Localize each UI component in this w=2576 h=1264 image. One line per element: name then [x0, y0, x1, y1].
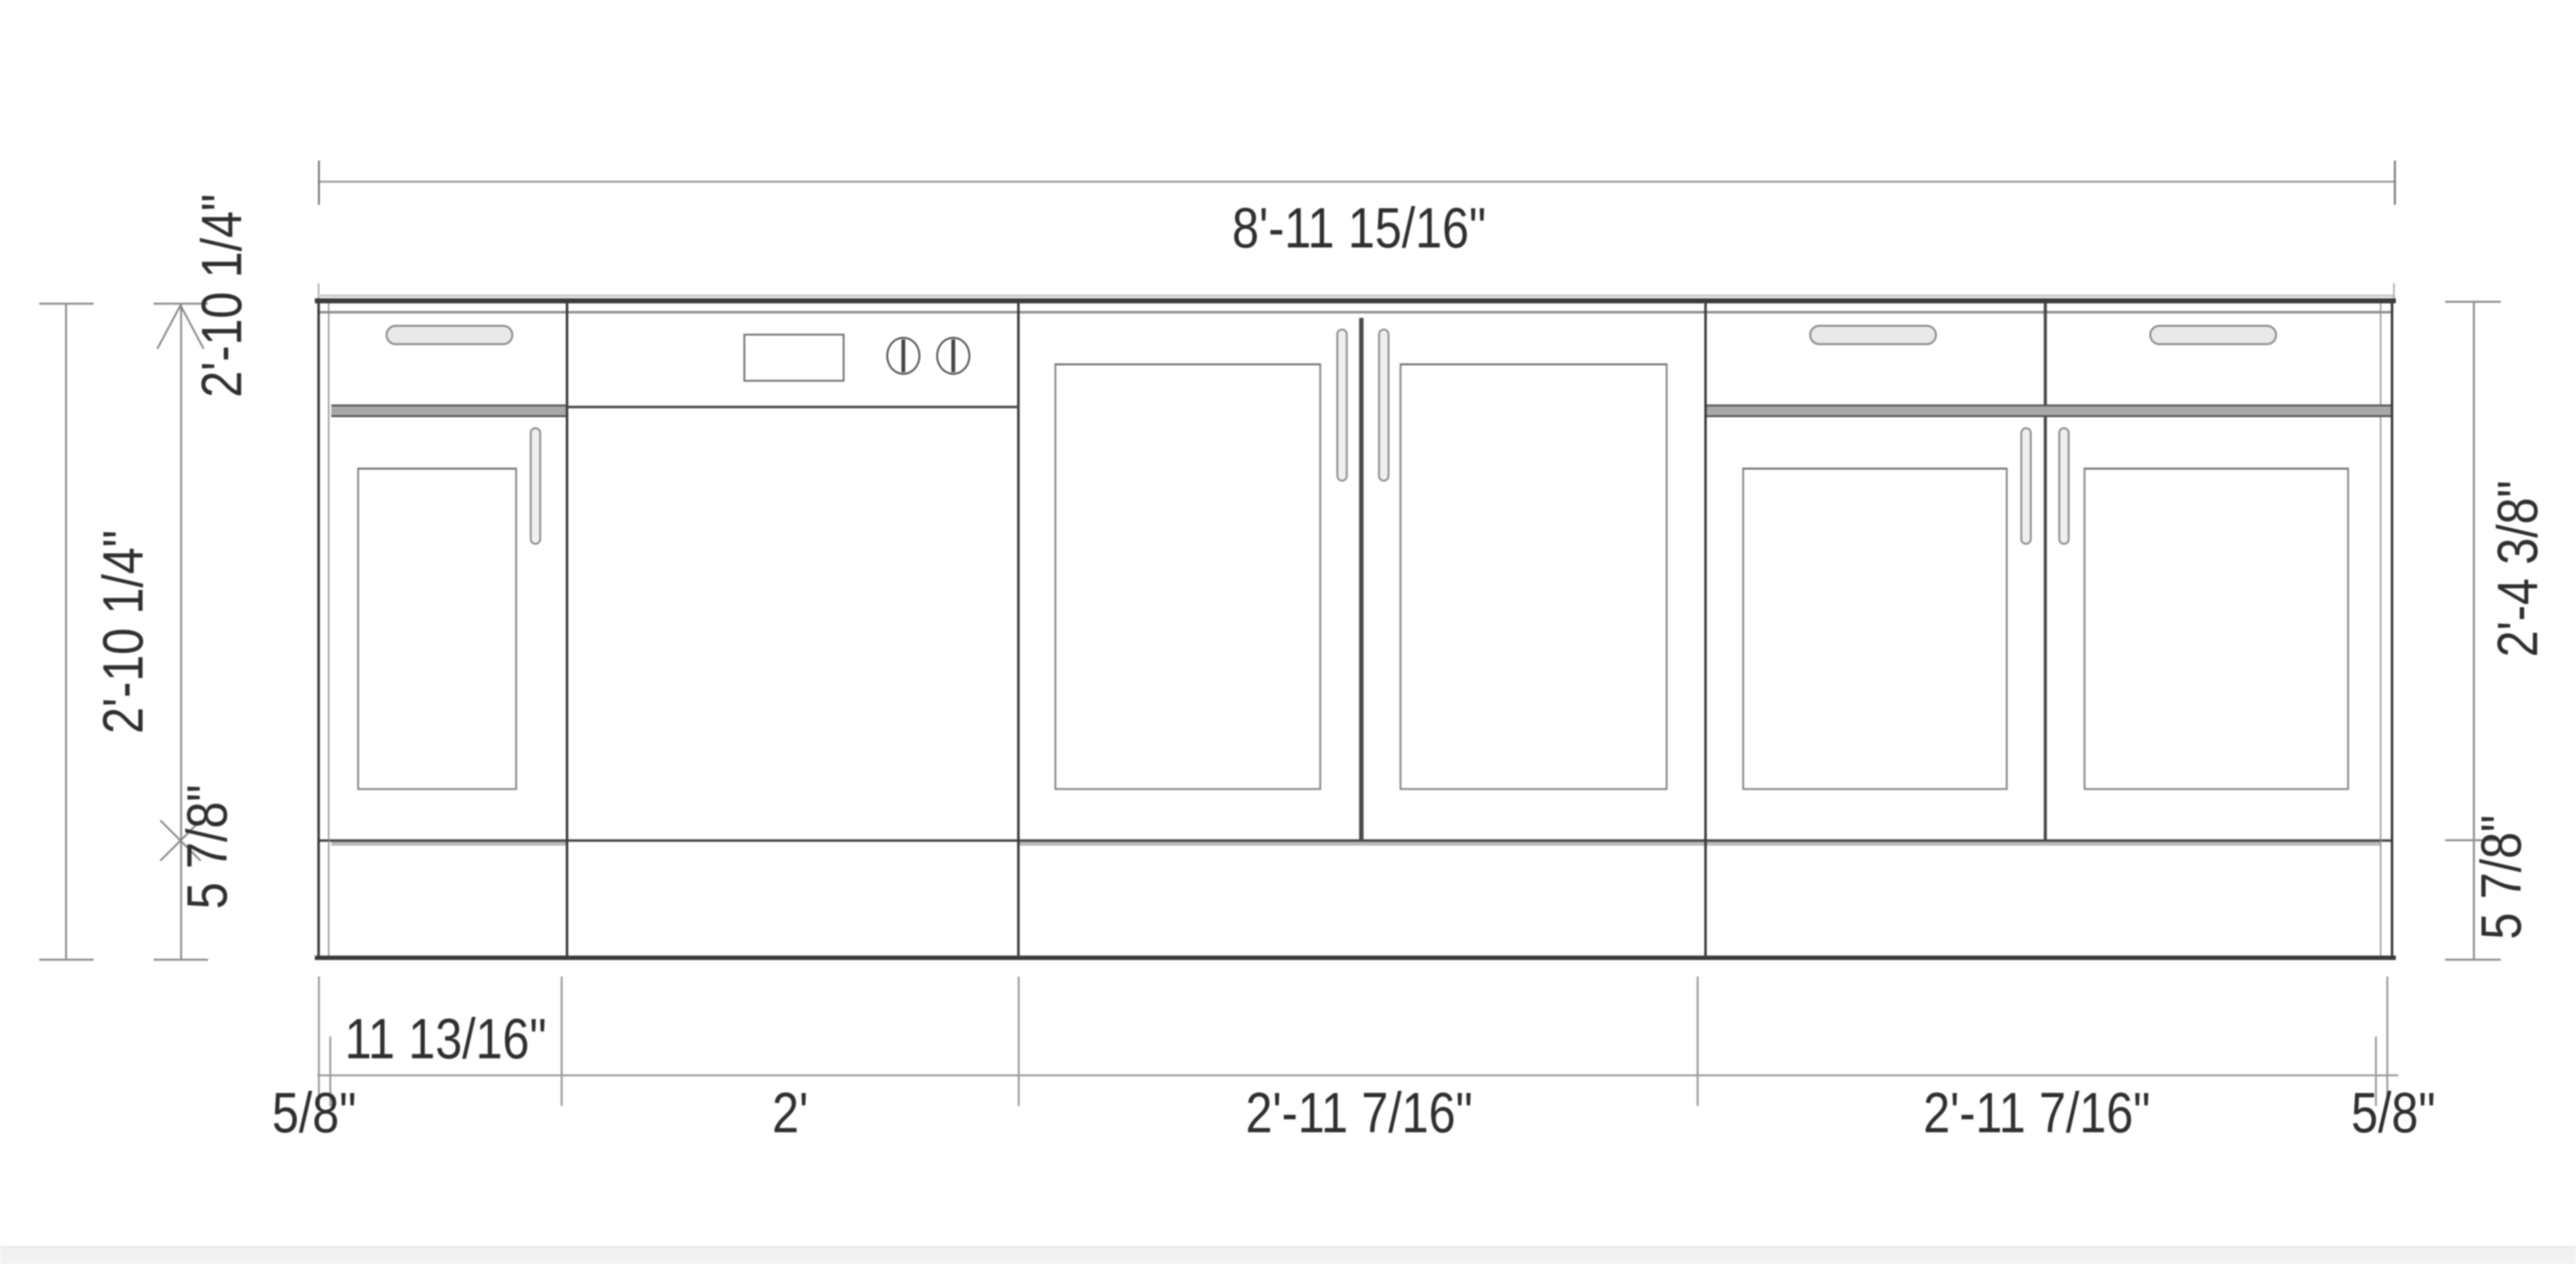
right-door-height-label: 2'-4 3/8" [2486, 480, 2551, 657]
dishwasher-knob-left-pointer [901, 339, 905, 372]
overall-width-label: 8'-11 15/16" [1232, 197, 1486, 262]
divider-cabinet3-cabinet4 [1704, 303, 1707, 956]
left-cabinet-height-label: 2'-10 1/4" [190, 194, 255, 398]
cabinet-4-drawer-bottom-rail [1707, 404, 2391, 417]
divider-dishwasher-cabinet3 [1017, 303, 1020, 956]
cabinet-3-left-door-handle [1336, 329, 1348, 482]
cabinet-1-door-panel [357, 468, 517, 790]
cabinet-3-door-gap [1359, 318, 1364, 839]
cabinet-3-width-label: 2'-11 7/16" [1245, 1081, 1472, 1146]
door-bottom-shadow-cabinet-1 [331, 842, 566, 846]
bottom-tick-dw-cab3 [1018, 976, 1020, 1106]
right-dimension-cap-top [2445, 301, 2501, 303]
cabinet-4-right-drawer-handle [2149, 325, 2277, 345]
left-end-panel-width-label: 5/8" [272, 1081, 357, 1146]
top-dimension-line [319, 181, 2396, 183]
cabinet-3-right-door-handle [1378, 329, 1389, 482]
dishwasher-knob-right [936, 337, 970, 375]
right-end-panel-inner-line [2380, 303, 2381, 956]
right-toe-kick-height-label: 5 7/8" [2470, 815, 2535, 939]
left-outer-dimension-cap-top [39, 303, 94, 305]
dishwasher-display [743, 334, 845, 382]
bottom-tick-cab1-dw [561, 976, 563, 1106]
dishwasher-knob-right-pointer [951, 339, 955, 372]
cabinet-4-left-door-handle [2020, 427, 2032, 545]
cabinet-3-right-door-panel [1400, 363, 1668, 790]
top-dimension-tick-left [318, 161, 320, 205]
divider-cabinet1-dishwasher [566, 303, 568, 956]
door-bottom-shadow-cabinet-4 [1707, 842, 2380, 846]
bottom-tick-cab3-cab4 [1697, 976, 1699, 1106]
countertop-edge [315, 298, 2396, 303]
cabinet-4-left-drawer-handle [1809, 325, 1937, 345]
cabinet-4-left-door-panel [1742, 468, 2008, 790]
cabinet-elevation-drawing: 8'-11 15/16" 2'-10 1/4" 2'-10 [0, 0, 2576, 1264]
cabinet-4-width-label: 2'-11 7/16" [1923, 1081, 2150, 1146]
dishwasher-control-band-bottom [567, 406, 1018, 408]
countertop-highlight-line [317, 295, 2393, 297]
left-outer-dimension-cap-bottom [39, 959, 94, 961]
top-dimension-tick-right [2394, 161, 2396, 205]
top-rail-line [319, 311, 2391, 313]
cabinet-4-right-door-panel [2084, 468, 2349, 790]
cabinet-1-drawer-bottom-rail [331, 404, 566, 417]
page-bottom-strip [0, 1246, 2576, 1264]
cabinet-4-center-divider [2044, 303, 2047, 839]
cabinet-1-drawer-handle [386, 325, 513, 345]
left-outer-dimension-line [65, 304, 67, 960]
left-inner-arrow-wing-left [157, 305, 181, 349]
dishwasher-knob-left [886, 337, 920, 375]
dishwasher-width-label: 2' [772, 1081, 808, 1146]
door-bottom-shadow-cabinet-3 [1018, 842, 1704, 846]
left-inner-dimension-cap-bottom [154, 959, 208, 961]
right-dimension-cap-bottom [2445, 959, 2501, 961]
right-end-panel-width-label: 5/8" [2351, 1081, 2436, 1146]
cabinet-1-door-handle [530, 427, 541, 545]
cabinet-4-right-door-handle [2058, 427, 2070, 545]
left-end-panel-inner-line [328, 303, 329, 956]
bottom-dimension-line [317, 1074, 2398, 1076]
left-total-height-label: 2'-10 1/4" [92, 530, 157, 734]
cabinet-3-left-door-panel [1054, 363, 1321, 790]
left-end-panel-outer-line [317, 298, 320, 960]
right-end-panel-outer-line [2391, 298, 2393, 960]
cabinet-1-width-label: 11 13/16" [345, 1007, 546, 1073]
cabinet-bottom-edge [315, 956, 2396, 960]
left-toe-kick-height-label: 5 7/8" [176, 784, 241, 909]
top-extension-stub-right [2393, 283, 2395, 298]
